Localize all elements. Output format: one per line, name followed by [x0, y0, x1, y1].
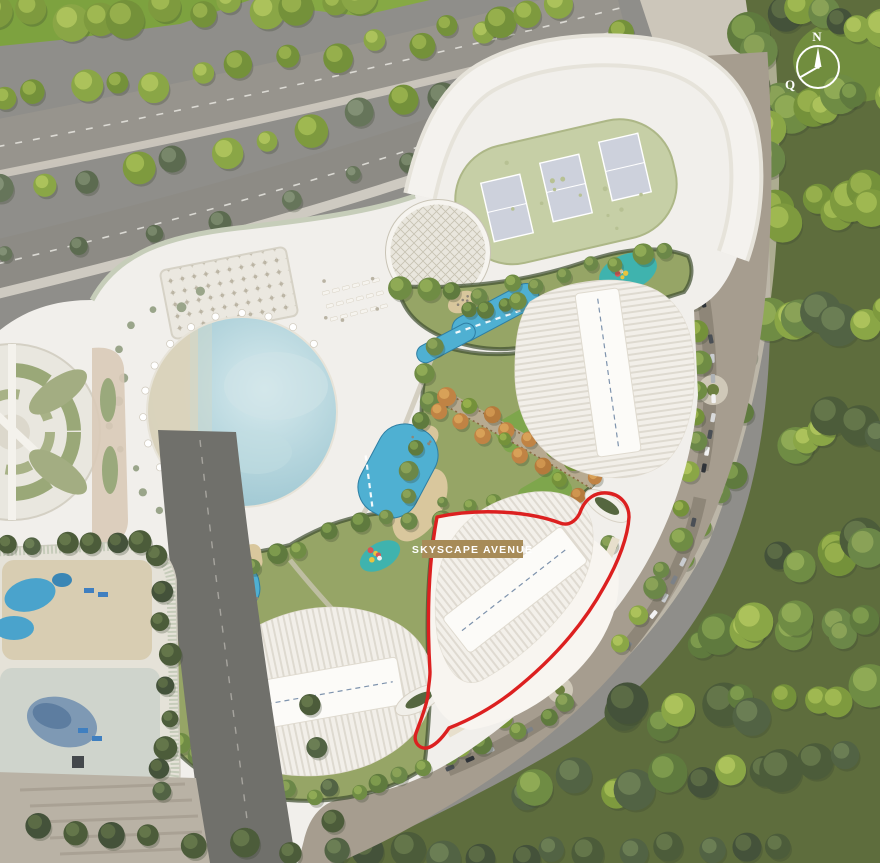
tree-highlight [479, 303, 489, 313]
tree-highlight [814, 399, 836, 421]
tree-highlight [66, 823, 79, 836]
tree-highlight [690, 769, 707, 786]
tree-highlight [154, 582, 166, 594]
tree-highlight [416, 365, 427, 376]
tree-highlight [269, 545, 280, 556]
palm-motif [196, 287, 205, 296]
tree-highlight [702, 839, 717, 854]
tree-highlight [585, 257, 593, 265]
tree-highlight [87, 5, 105, 23]
field-dot [603, 186, 608, 191]
umbrella [289, 324, 296, 331]
tree-highlight [152, 614, 162, 624]
tree-highlight [806, 186, 823, 203]
paving-motif [322, 279, 326, 283]
tree-highlight [774, 686, 788, 700]
tree-highlight [416, 761, 425, 770]
tree-highlight [782, 603, 801, 622]
tree-highlight [233, 830, 249, 846]
tree-highlight [801, 746, 821, 766]
tree-highlight [768, 836, 782, 850]
tree-highlight [707, 686, 731, 710]
tree-highlight [366, 31, 378, 43]
tree-highlight [82, 534, 94, 546]
tree-highlight [279, 46, 292, 59]
tree-highlight [309, 791, 318, 800]
tree-highlight [541, 838, 555, 852]
play-equipment [623, 270, 628, 275]
tree-highlight [432, 404, 441, 413]
tree-highlight [511, 293, 521, 303]
tree-highlight [77, 172, 90, 185]
tree-highlight [74, 72, 92, 90]
field-dot [560, 177, 565, 182]
tree-highlight [718, 757, 735, 774]
tree-highlight [611, 686, 634, 709]
umbrella [145, 440, 152, 447]
paving-motif [341, 318, 345, 322]
tree-highlight [147, 226, 157, 236]
tree-highlight [631, 607, 642, 618]
umbrella [167, 340, 174, 347]
tree-highlight [513, 448, 522, 457]
tree-highlight [469, 846, 485, 862]
tree-highlight [658, 244, 667, 253]
field-dot [511, 207, 515, 211]
tree-highlight [829, 10, 844, 25]
tree-highlight [348, 100, 364, 116]
tree-highlight [842, 84, 856, 98]
tree-highlight [476, 429, 485, 438]
tree-highlight [735, 835, 751, 851]
tree-highlight [410, 441, 419, 450]
tree-highlight [56, 7, 77, 28]
tree-highlight [156, 738, 169, 751]
umbrella [238, 309, 245, 316]
site-plan-aerial: SKYSCAPE AVENUE [0, 0, 880, 863]
tree-highlight [139, 826, 151, 838]
tree-highlight [465, 500, 472, 507]
tree-highlight [183, 835, 197, 849]
tree-highlight [109, 73, 121, 85]
palm-motif [115, 345, 123, 353]
tree-highlight [856, 192, 877, 213]
tree-highlight [439, 389, 449, 399]
tree-highlight [523, 433, 532, 442]
tree-highlight [506, 276, 515, 285]
tree-highlight [463, 399, 472, 408]
tree-highlight [853, 311, 870, 328]
tree-highlight [284, 192, 295, 203]
tree-highlight [141, 74, 158, 91]
palm-motif [150, 306, 157, 313]
tree-highlight [259, 133, 270, 144]
rooftop-pool [52, 573, 72, 587]
tree-highlight [488, 9, 505, 26]
tree-highlight [101, 824, 116, 839]
tree-highlight [652, 756, 674, 778]
tree-highlight [215, 140, 232, 157]
tree-highlight [401, 462, 412, 473]
tree-highlight [161, 645, 174, 658]
tree-highlight [646, 578, 659, 591]
tree-highlight [195, 64, 207, 76]
umbrella [212, 313, 219, 320]
tree-highlight [422, 393, 434, 405]
field-dot [619, 207, 623, 211]
tree-highlight [702, 616, 725, 639]
tree-highlight [853, 607, 869, 623]
tree-highlight [558, 269, 566, 277]
table [429, 440, 432, 443]
tree-highlight [71, 238, 81, 248]
tree-highlight [151, 760, 162, 771]
paving-motif [324, 316, 328, 320]
tree-highlight [853, 667, 877, 691]
tree-highlight [730, 686, 744, 700]
table [466, 299, 469, 302]
tree-highlight [154, 783, 164, 793]
tree-highlight [161, 148, 176, 163]
game-court [72, 756, 84, 768]
tree-highlight [575, 839, 593, 857]
tree-highlight [618, 772, 641, 795]
tree-highlight [353, 514, 364, 525]
tree-highlight [831, 623, 847, 639]
tree-highlight [553, 473, 561, 481]
tree-highlight [281, 844, 293, 856]
umbrella [151, 362, 158, 369]
tree-highlight [430, 843, 449, 862]
tree-highlight [354, 786, 362, 794]
tree-highlight [412, 35, 426, 49]
tree-highlight [500, 433, 507, 440]
field-dot [505, 161, 509, 165]
anchor-building-north [515, 280, 694, 477]
tree-highlight [787, 552, 805, 570]
tree-highlight [852, 531, 874, 553]
north-label: N [812, 29, 822, 44]
field-dot [553, 188, 556, 191]
tree-highlight [392, 768, 401, 777]
palm-motif [156, 507, 163, 514]
tree-highlight [25, 539, 35, 549]
tree-highlight [500, 423, 509, 432]
qibla-label: Q [785, 77, 795, 92]
tree-highlight [0, 536, 10, 546]
tree-highlight [428, 339, 438, 349]
umbrella [140, 414, 147, 421]
umbrella [142, 387, 149, 394]
tree-highlight [158, 678, 168, 688]
tree-highlight [463, 303, 472, 312]
tree-highlight [126, 154, 144, 172]
field-dot [615, 227, 618, 230]
tree-highlight [665, 695, 684, 714]
table [466, 295, 469, 298]
tree-highlight [22, 81, 36, 95]
tree-highlight [402, 514, 412, 524]
tree-highlight [226, 52, 242, 68]
tree-highlight [438, 498, 444, 504]
tree-highlight [821, 307, 845, 331]
tree-highlight [520, 772, 540, 792]
tree-highlight [500, 299, 507, 306]
play-equipment [377, 556, 382, 561]
tree-highlight [394, 835, 414, 855]
tree-highlight [59, 533, 71, 545]
field-dot [540, 201, 544, 205]
tree-highlight [131, 532, 144, 545]
palm-motif [127, 321, 135, 329]
tree-highlight [515, 847, 530, 862]
tree-highlight [163, 712, 172, 721]
play-equipment [369, 557, 375, 563]
tree-highlight [291, 543, 300, 552]
tree-highlight [672, 529, 685, 542]
tree-highlight [472, 289, 481, 298]
palm-motif [133, 465, 139, 471]
tree-highlight [324, 811, 337, 824]
play-equipment [620, 275, 624, 279]
tree-highlight [380, 511, 388, 519]
tree-highlight [420, 279, 433, 292]
tree-highlight [656, 834, 672, 850]
field-dot [579, 193, 582, 196]
umbrella [310, 340, 317, 347]
table [411, 436, 414, 439]
tree-highlight [622, 840, 638, 856]
table [428, 443, 431, 446]
tree-highlight [674, 501, 683, 510]
tree-highlight [655, 563, 664, 572]
tree-highlight [609, 258, 617, 266]
tree-highlight [736, 700, 757, 721]
car [711, 394, 716, 403]
tree-highlight [370, 775, 381, 786]
field-dot [550, 178, 555, 183]
tree-highlight [301, 696, 313, 708]
tree-highlight [308, 739, 320, 751]
tree-highlight [557, 695, 567, 705]
tree-highlight [808, 688, 823, 703]
tree-highlight [193, 3, 208, 18]
tree-highlight [767, 544, 782, 559]
paving-motif [371, 277, 375, 281]
tree-highlight [454, 414, 463, 423]
tree-highlight [572, 489, 580, 497]
field-dot [639, 193, 643, 197]
tree-highlight [738, 605, 759, 626]
tree-highlight [516, 3, 531, 18]
tree-highlight [110, 3, 131, 24]
tree-highlight [36, 175, 49, 188]
tree-highlight [843, 408, 865, 430]
table [457, 303, 460, 306]
tree-highlight [391, 87, 408, 104]
tree-highlight [559, 760, 579, 780]
tree-highlight [211, 213, 224, 226]
umbrella [187, 324, 194, 331]
tree-highlight [444, 283, 454, 293]
car [711, 374, 716, 383]
tree-highlight [110, 534, 121, 545]
tree-highlight [613, 636, 623, 646]
tree-highlight [511, 724, 520, 733]
tree-highlight [414, 413, 424, 423]
masterplan-svg: SKYSCAPE AVENUE [0, 0, 880, 863]
tree-highlight [834, 743, 850, 759]
palm-motif [139, 488, 147, 496]
palm-motif [177, 302, 187, 312]
tree-highlight [327, 840, 341, 854]
tree-highlight [542, 710, 551, 719]
tree-highlight [438, 17, 450, 29]
tree-highlight [486, 407, 495, 416]
tree-highlight [326, 46, 342, 62]
paving-motif [375, 307, 379, 311]
tree-highlight [764, 752, 788, 776]
tree-highlight [322, 524, 332, 534]
tree-highlight [28, 815, 42, 829]
table [461, 299, 464, 302]
skyscape-avenue-label: SKYSCAPE AVENUE [412, 540, 533, 558]
tree-highlight [390, 278, 403, 291]
tree-highlight [347, 167, 355, 175]
play-equipment [368, 547, 374, 553]
field-dot [606, 214, 609, 217]
tree-highlight [536, 459, 545, 468]
label-text: SKYSCAPE AVENUE [412, 544, 533, 556]
tree-highlight [825, 689, 842, 706]
umbrella [265, 313, 272, 320]
tree-highlight [298, 117, 316, 135]
tree-highlight [846, 17, 861, 32]
tree-highlight [322, 780, 332, 790]
tree-highlight [403, 490, 411, 498]
tree-highlight [635, 245, 647, 257]
tree-highlight [530, 280, 539, 289]
